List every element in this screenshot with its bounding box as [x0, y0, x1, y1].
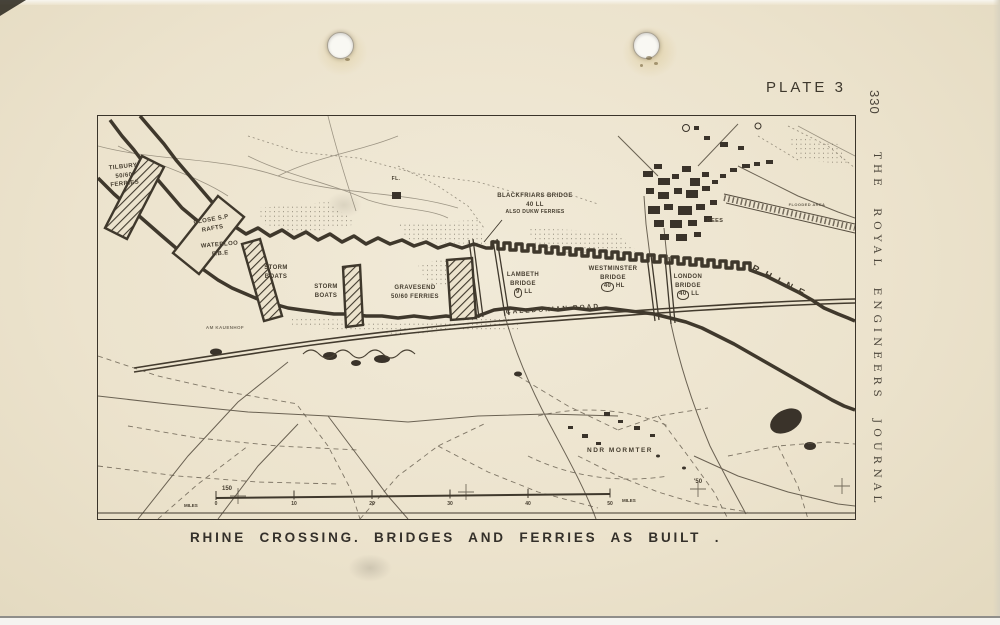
- label-london-bridge: LONDON BRIDGE 40 LL: [664, 273, 712, 300]
- scan-edge-top: [0, 0, 1000, 5]
- scale-tick-50: 50: [602, 501, 618, 507]
- pencil-smudge: [348, 554, 392, 582]
- label-ndr-mormter: NDR MORMTER: [570, 446, 670, 455]
- scale-tick-10: 10: [286, 501, 302, 507]
- grid-ref-150: 150: [222, 486, 232, 492]
- ink-fleck: [640, 64, 643, 67]
- label-gravesend-ferries: GRAVESEND 50/60 FERRIES: [386, 284, 444, 301]
- corner-ink-mark: [0, 0, 26, 16]
- scan-edge-bottom: [0, 616, 1000, 625]
- ponds: [210, 349, 816, 470]
- label-rees-town: REES: [700, 218, 730, 226]
- label-tilbury-ferries: TILBURY 50/60 FERRIES: [102, 161, 146, 191]
- embankment: [724, 194, 855, 233]
- grid-ref-50: '50: [694, 479, 702, 485]
- storm-boats-band: [343, 265, 363, 327]
- label-blackfriars-bridge: BLACKFRIARS BRIDGE 40 LL ALSO DUKW FERRI…: [468, 192, 602, 217]
- label-am-kauenhof: AM KAUENHOF: [196, 325, 254, 332]
- map-frame: TILBURY 50/60 FERRIES CLOSE S.P RAFTS WA…: [97, 115, 856, 520]
- scale-tick-40: 40: [520, 501, 536, 507]
- blackfriars-leader-line: [484, 220, 502, 242]
- punch-hole-left: [327, 32, 354, 59]
- plate-label: PLATE 3: [766, 79, 846, 96]
- westminster-bridge-line: [647, 255, 659, 321]
- stream: [303, 350, 415, 358]
- map-caption-title: RHINE CROSSING.: [190, 530, 361, 545]
- label-flooded-area: FLOODED AREA: [784, 202, 830, 208]
- ink-fleck: [345, 58, 350, 61]
- map-caption-subtitle: BRIDGES AND FERRIES AS BUILT .: [374, 530, 721, 545]
- scale-tick-0: 0: [208, 501, 224, 507]
- scale-unit-right: MILES: [622, 498, 636, 503]
- scan-edge-right: [993, 0, 1000, 625]
- scale-tick-30: 30: [442, 501, 458, 507]
- label-storm-boats-2: STORM BOATS: [308, 283, 344, 300]
- ink-fleck: [646, 56, 652, 60]
- map-artwork: [98, 116, 855, 519]
- fl-mark: [392, 192, 401, 199]
- label-fl: FL.: [386, 176, 406, 183]
- scale-tick-20: 20: [364, 501, 380, 507]
- punch-hole-right: [633, 32, 660, 59]
- ink-fleck: [654, 62, 658, 65]
- label-lambeth-bridge: LAMBETH BRIDGE 9 LL: [499, 271, 547, 298]
- label-westminster-bridge: WESTMINSTER BRIDGE 40 HL: [582, 265, 644, 292]
- gravesend-ferry-band: [447, 258, 476, 320]
- scanned-journal-page: PLATE 3 330 THE ROYAL ENGINEERS JOURNAL: [0, 0, 1000, 625]
- scale-unit-left: MILES: [184, 503, 198, 508]
- label-storm-boats-1: STORM BOATS: [258, 264, 294, 281]
- journal-title: THE ROYAL ENGINEERS JOURNAL: [871, 152, 883, 482]
- page-number: 330: [867, 90, 882, 115]
